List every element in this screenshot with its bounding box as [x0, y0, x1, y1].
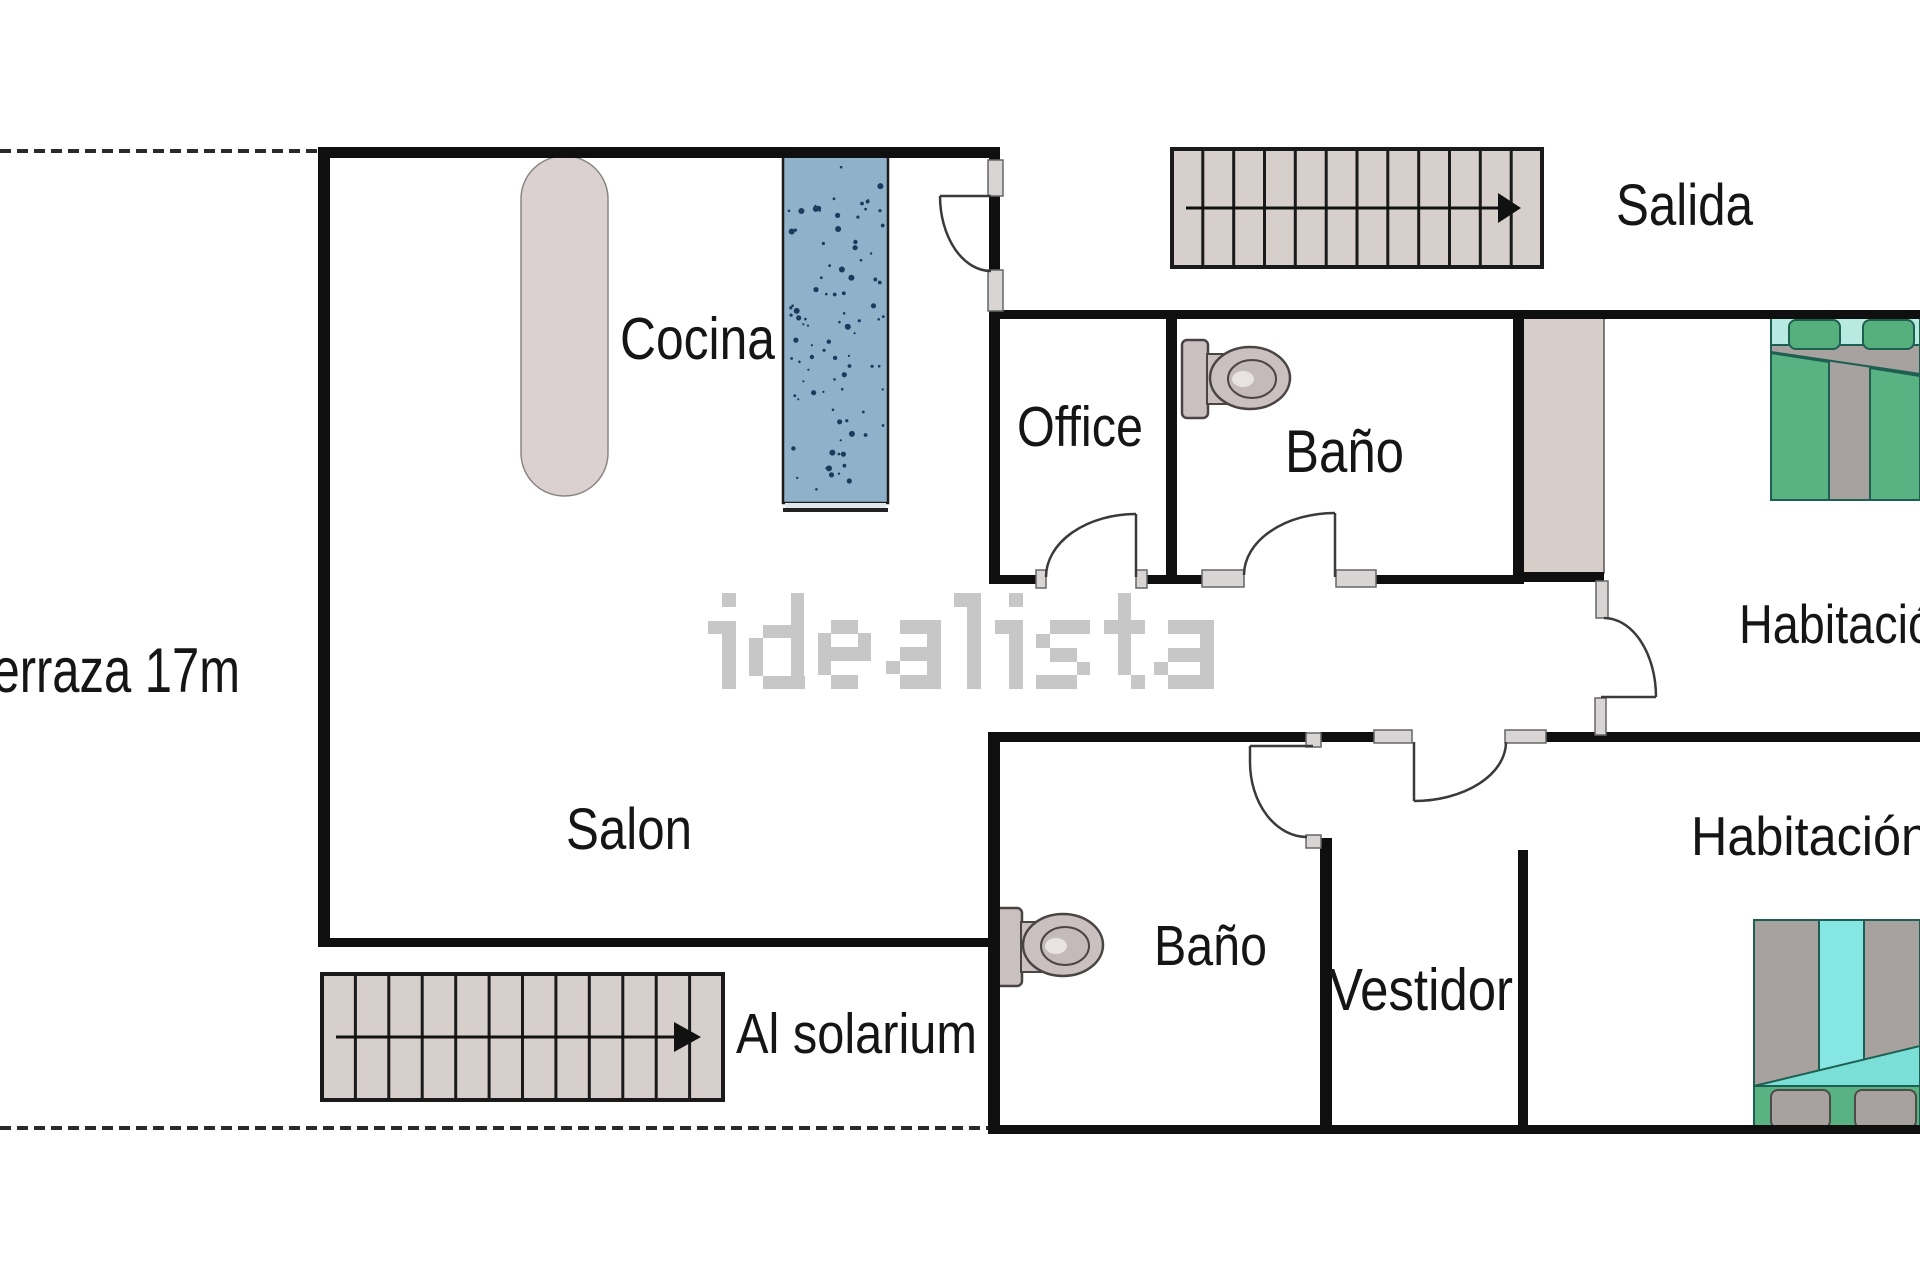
svg-text:Salon: Salon: [566, 797, 692, 862]
svg-text:Office: Office: [1017, 395, 1143, 459]
svg-text:Vestidor: Vestidor: [1329, 957, 1513, 1023]
svg-text:Salida: Salida: [1616, 173, 1754, 238]
svg-text:Al solarium: Al solarium: [736, 1002, 977, 1066]
svg-text:Baño: Baño: [1154, 914, 1267, 978]
svg-text:Terraza 17m: Terraza 17m: [0, 636, 240, 706]
svg-text:Cocina: Cocina: [620, 306, 775, 372]
svg-text:Habitación: Habitación: [1739, 593, 1920, 655]
svg-text:Baño: Baño: [1285, 418, 1404, 485]
svg-text:Habitación: Habitación: [1691, 805, 1920, 867]
